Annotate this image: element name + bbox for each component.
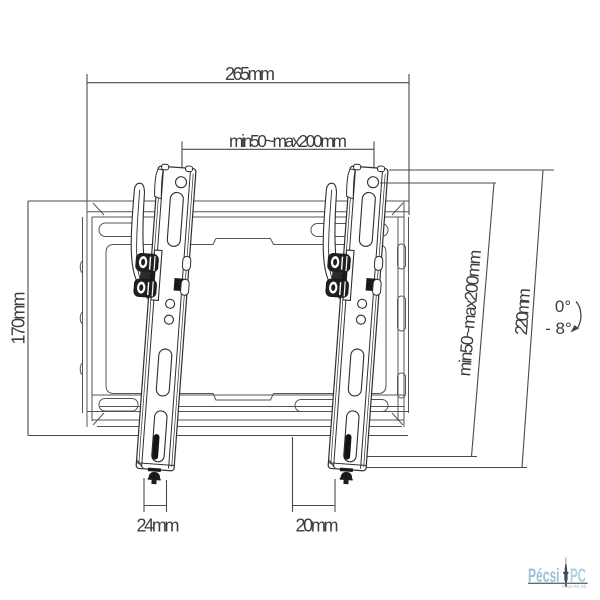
svg-text:0°: 0°	[555, 297, 571, 316]
svg-text:220mm: 220mm	[511, 287, 534, 335]
svg-text:20mm: 20mm	[296, 516, 339, 536]
svg-text:24mm: 24mm	[137, 516, 180, 536]
svg-text:265mm: 265mm	[225, 64, 275, 84]
svg-text:- 8°: - 8°	[545, 319, 572, 338]
svg-text:170mm: 170mm	[9, 292, 29, 345]
svg-text:Pécsi PC Kft.: Pécsi PC Kft.	[562, 584, 587, 589]
svg-text:min50~max200mm: min50~max200mm	[229, 131, 347, 151]
